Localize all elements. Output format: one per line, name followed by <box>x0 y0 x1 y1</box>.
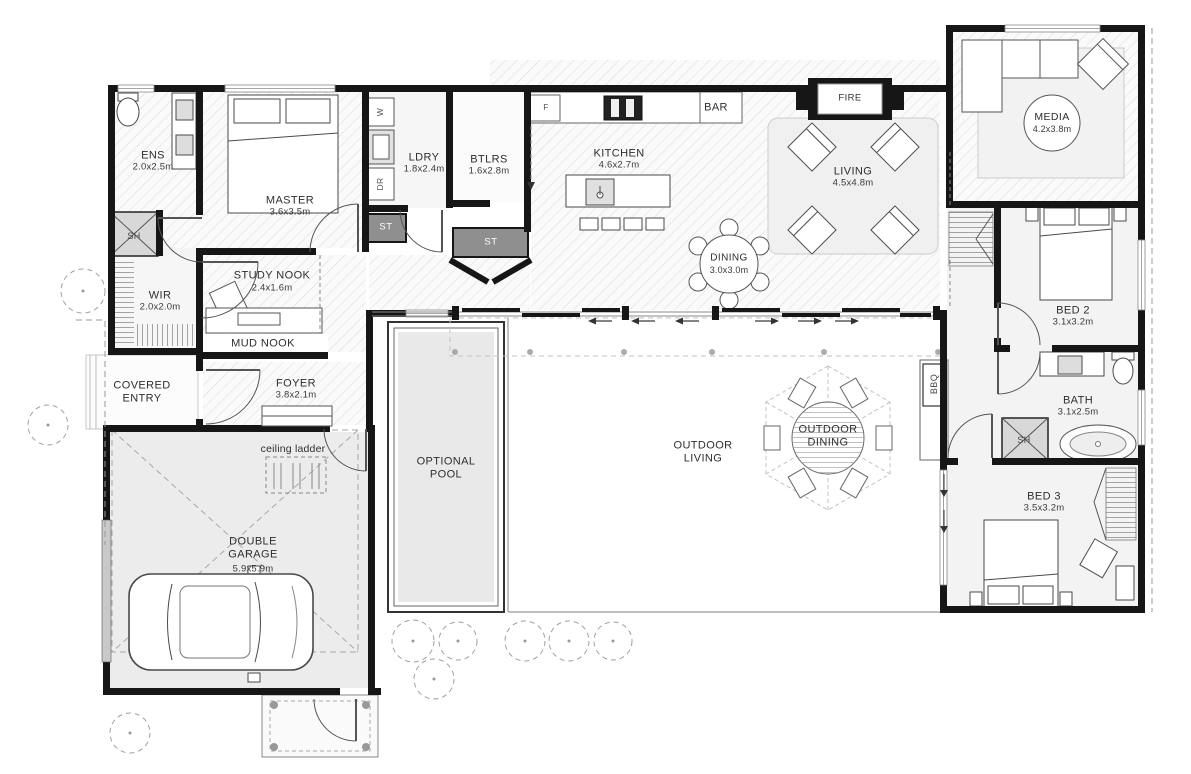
dryer-label: DR <box>376 177 386 190</box>
room-dims-media: 4.2x3.8m <box>1033 124 1072 134</box>
room-label-foyer: FOYER <box>276 378 316 391</box>
fridge-label: F <box>543 103 549 113</box>
room-label-garage: DOUBLE GARAGE <box>212 535 294 560</box>
storage-label-ldry: ST <box>379 223 392 234</box>
garage-porch <box>262 695 378 757</box>
room-dims-bed2: 3.1x3.2m <box>1053 318 1094 329</box>
foyer-cabinet <box>262 406 332 426</box>
room-label-ldry: LDRY <box>409 152 440 165</box>
room-label-btlrs: BTLRS <box>470 154 507 167</box>
bbq-label: BBQ <box>929 374 939 394</box>
fireplace-label: FIRE <box>838 94 861 105</box>
room-dims-bath: 3.1x2.5m <box>1058 408 1099 419</box>
floorplan-page: ENS 2.0x2.5m SH MASTER 3.6x3.5m WIR 2.0x… <box>0 0 1191 774</box>
hall-robe <box>949 212 993 266</box>
ceiling-ladder-label: ceiling ladder <box>261 443 326 455</box>
room-label-media: MEDIA <box>1034 111 1069 123</box>
room-label-mud-nook: MUD NOOK <box>231 338 295 351</box>
shower-label-ens: SH <box>127 231 140 241</box>
washer-label: W <box>376 108 386 116</box>
room-dims-btlrs: 1.6x2.8m <box>469 167 510 178</box>
room-label-wir: WIR <box>149 290 172 303</box>
shower-label-bath: SH <box>1017 435 1030 445</box>
kitchen-island <box>566 175 670 230</box>
room-label-ens: ENS <box>141 150 165 163</box>
room-label-master: MASTER <box>266 195 314 208</box>
room-label-outdoor-dining: OUTDOOR DINING <box>792 423 864 448</box>
room-label-study-nook: STUDY NOOK <box>234 270 311 283</box>
storage-label-btlrs: ST <box>484 238 497 249</box>
room-dims-master: 3.6x3.5m <box>270 208 311 219</box>
car-icon <box>129 566 313 682</box>
room-label-bed3: BED 3 <box>1027 491 1061 504</box>
room-label-outdoor-living: OUTDOOR LIVING <box>667 439 739 464</box>
room-label-bath: BATH <box>1063 395 1093 408</box>
room-label-bed2: BED 2 <box>1056 305 1090 318</box>
room-dims-kitchen: 4.6x2.7m <box>599 161 640 172</box>
room-dims-garage: 5.9x5.9m <box>233 565 274 576</box>
room-dims-foyer: 3.8x2.1m <box>276 391 317 402</box>
room-dims-dining: 3.0x3.0m <box>710 265 749 275</box>
bar-label: BAR <box>704 102 728 115</box>
room-label-pool: OPTIONAL POOL <box>410 455 482 480</box>
room-label-dining: DINING <box>710 252 747 264</box>
room-dims-ldry: 1.8x2.4m <box>404 165 445 176</box>
room-dims-ens: 2.0x2.5m <box>133 163 174 174</box>
room-dims-bed3: 3.5x3.2m <box>1024 504 1065 515</box>
room-label-living: LIVING <box>834 166 872 179</box>
room-label-kitchen: KITCHEN <box>593 148 644 161</box>
bed2-furniture <box>1026 205 1126 300</box>
room-label-covered-entry: COVERED ENTRY <box>101 379 183 404</box>
room-dims-wir: 2.0x2.0m <box>140 303 181 314</box>
room-dims-study-nook: 2.4x1.6m <box>252 284 293 295</box>
room-dims-living: 4.5x4.8m <box>833 179 874 190</box>
